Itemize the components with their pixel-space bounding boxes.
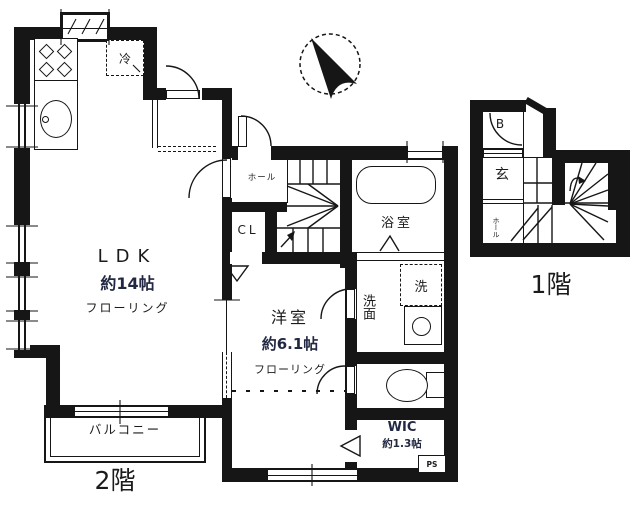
room-label-balcony: バルコニー xyxy=(70,423,180,437)
room-label-cl: CL xyxy=(230,224,266,238)
ps-box: PS xyxy=(418,455,446,473)
compass-north-icon xyxy=(300,34,360,99)
room-floor-youshitsu: フローリング xyxy=(234,364,346,377)
door-arcs xyxy=(166,66,522,394)
room-label-youshitsu: 洋室 xyxy=(240,309,340,327)
floor-label-2f: 2階 xyxy=(78,467,152,496)
bay-window-hatch xyxy=(68,19,104,34)
room-label-senmen: 洗面 xyxy=(358,280,374,334)
room-label-b: B xyxy=(488,118,512,132)
room-label-wic: WIC xyxy=(362,421,442,436)
room-size-wic: 約1.3帖 xyxy=(362,438,442,450)
room-floor-ldk: フローリング xyxy=(60,302,195,316)
room-size-youshitsu: 約6.1帖 xyxy=(240,336,340,353)
room-size-ldk: 約14帖 xyxy=(60,275,195,293)
floor-label-1f: 1階 xyxy=(512,271,590,300)
stairs-2f xyxy=(277,153,340,258)
room-label-hall-2f: ホール xyxy=(240,174,284,184)
floor-plan-canvas: 冷 洗 PS xyxy=(0,0,640,517)
entrance-corner-wall xyxy=(526,100,550,114)
stairs-1f xyxy=(511,157,608,243)
room-label-hall-1f: ホール xyxy=(487,208,500,246)
room-label-ldk: LDK xyxy=(60,247,195,268)
room-label-genkan: 玄 xyxy=(490,167,514,183)
room-label-bath: 浴室 xyxy=(352,217,442,232)
fridge-corner-dash xyxy=(133,65,140,72)
ps-label: PS xyxy=(427,460,438,469)
